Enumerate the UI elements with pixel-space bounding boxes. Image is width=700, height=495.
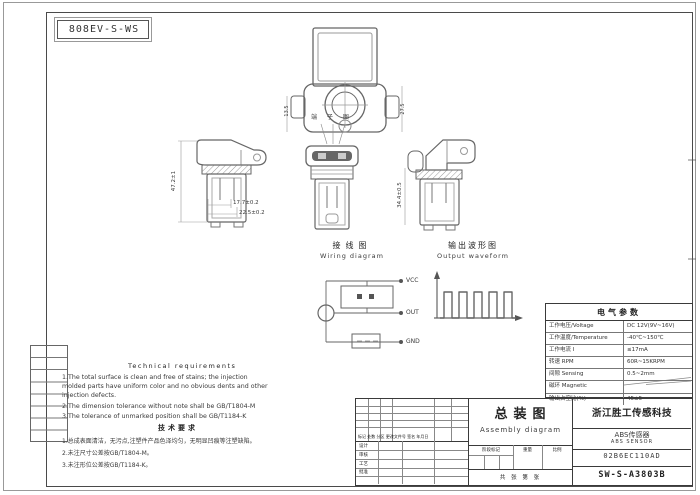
terminal-label: 端 子 图 bbox=[300, 112, 364, 121]
param-label: 转速 RPM bbox=[546, 357, 624, 368]
title-center: 总装图 Assembly diagram 阶段标记 重量 比例 共 张 第 张 bbox=[469, 399, 572, 484]
product-name-en: ABS SENSOR bbox=[573, 439, 691, 445]
tech-req-heading-zh: 技术要求 bbox=[158, 423, 198, 433]
drawing-title-zh: 总装图 bbox=[469, 403, 572, 422]
wiring-diagram-drawing bbox=[318, 279, 403, 348]
weight-label: 重量 bbox=[513, 447, 542, 453]
drawing-sheet: 808EV-S-WS bbox=[0, 0, 700, 495]
terminal-out-label: OUT bbox=[406, 309, 419, 316]
electrical-parameters-table: 电气参数 工作电压/Voltage DC 12V(9V~16V) 工作温度/Te… bbox=[545, 303, 693, 398]
electrical-table-title: 电气参数 bbox=[546, 304, 692, 321]
param-label: 间隙 Sensing bbox=[546, 369, 624, 380]
sig-approve-label: 批准 bbox=[359, 469, 368, 475]
table-row: 间隙 Sensing 0.5~2mm bbox=[546, 369, 692, 381]
tech-req-en-line: 2.The dimension tolerance without note s… bbox=[62, 403, 255, 410]
param-label: 工作温度/Temperature bbox=[546, 333, 624, 344]
sheets-label: 共 张 第 张 bbox=[469, 473, 572, 481]
param-value: 60R~15KRPM bbox=[624, 357, 692, 368]
param-value: ≤17mA bbox=[624, 345, 692, 356]
terminal-gnd-label: GND bbox=[406, 338, 420, 345]
tech-req-zh-line: 3.未注形位公差按GB/T1184-K。 bbox=[62, 460, 152, 469]
tech-req-en-line: injection defects. bbox=[62, 392, 116, 399]
param-value bbox=[624, 381, 692, 392]
waveform-title-zh: 输出波形图 bbox=[428, 240, 518, 251]
left-view-dim-height: 47.2±1 bbox=[171, 159, 177, 203]
revision-header: 标记 处数 分区 更改文件号 签名 年月日 bbox=[358, 434, 468, 440]
stage-label: 阶段标记 bbox=[469, 447, 513, 453]
param-value: 0.5~2mm bbox=[624, 369, 692, 380]
left-view-dim-w2: 22.5±0.2 bbox=[239, 210, 265, 216]
sig-check-label: 审核 bbox=[359, 452, 368, 458]
param-value: DC 12V(9V~16V) bbox=[624, 321, 692, 332]
sig-process-label: 工艺 bbox=[359, 461, 368, 467]
tech-req-zh-line: 2.未注尺寸公差按GB/T1804-M。 bbox=[62, 448, 153, 457]
right-view-dim-height: 34.4±0.5 bbox=[397, 171, 403, 219]
tech-req-en-line: molded parts have uniform color and no o… bbox=[62, 383, 268, 390]
title-right: 浙江胜工传感科技 ABS传感器 ABS SENSOR 02B6EC110AD S… bbox=[573, 399, 691, 484]
waveform-title-en: Output waveform bbox=[423, 252, 523, 260]
wiring-title-zh: 接线图 bbox=[312, 240, 392, 251]
company-name: 浙江胜工传感科技 bbox=[573, 399, 691, 428]
scale-label: 比例 bbox=[542, 447, 572, 453]
table-row: 工作电压/Voltage DC 12V(9V~16V) bbox=[546, 321, 692, 333]
part-code: 02B6EC110AD bbox=[573, 452, 691, 460]
drawing-title-en: Assembly diagram bbox=[469, 426, 572, 434]
param-value: -40℃~150℃ bbox=[624, 333, 692, 344]
sig-design-label: 设计 bbox=[359, 443, 368, 449]
wiring-title-en: Wiring diagram bbox=[302, 252, 402, 260]
top-view-dim-left: 13.5 bbox=[284, 96, 290, 126]
param-label: 工作电流 I bbox=[546, 345, 624, 356]
terminal-vcc-label: VCC bbox=[406, 277, 418, 284]
table-row: 工作电流 I ≤17mA bbox=[546, 345, 692, 357]
front-view-drawing bbox=[306, 146, 358, 229]
tech-req-heading-en: Technical requirements bbox=[128, 362, 236, 370]
left-view-dim-w1: 17.7±0.2 bbox=[233, 200, 259, 206]
title-block: 标记 处数 分区 更改文件号 签名 年月日 设计 审核 工艺 批准 总装图 As… bbox=[355, 398, 693, 486]
right-view-drawing bbox=[405, 140, 475, 230]
top-view-dim-right: 27.5 bbox=[400, 94, 406, 124]
table-row: 转速 RPM 60R~15KRPM bbox=[546, 357, 692, 369]
waveform-drawing bbox=[434, 271, 523, 321]
param-label: 工作电压/Voltage bbox=[546, 321, 624, 332]
revision-grid: 标记 处数 分区 更改文件号 签名 年月日 设计 审核 工艺 批准 bbox=[356, 399, 468, 484]
drawing-number: SW-S-A3803B bbox=[573, 470, 691, 480]
table-row: 磁环 Magnetic bbox=[546, 381, 692, 393]
param-label: 磁环 Magnetic bbox=[546, 381, 624, 392]
tech-req-en-line: 3.The tolerance of unmarked position sha… bbox=[62, 413, 246, 420]
tech-req-zh-line: 1.总成表面清洁，无污点,注塑件产品色泽均匀，无明显凹痕等注塑缺陷。 bbox=[62, 436, 256, 445]
table-row: 工作温度/Temperature -40℃~150℃ bbox=[546, 333, 692, 345]
tech-req-en-line: 1.The total surface is clean and free of… bbox=[62, 374, 248, 381]
top-view-drawing bbox=[287, 28, 402, 144]
